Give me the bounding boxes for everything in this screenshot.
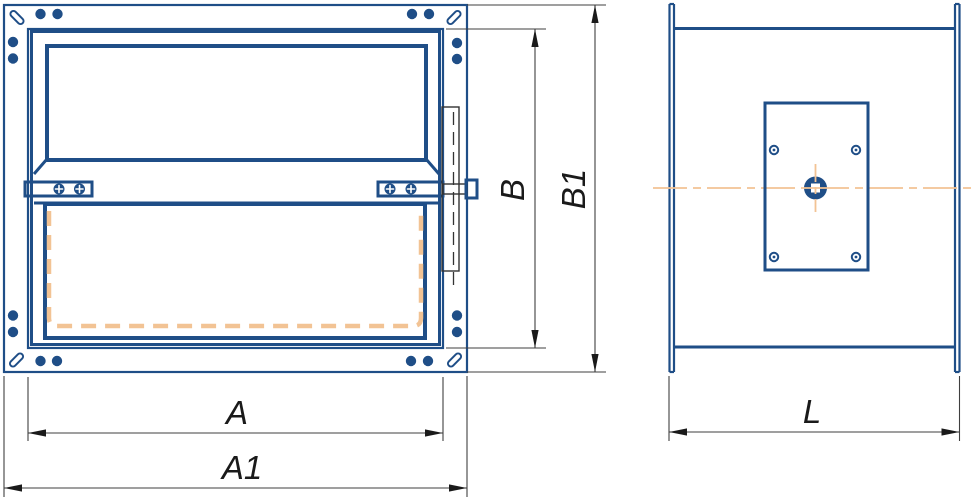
lower-panel <box>34 203 439 338</box>
mounting-screw-hole <box>852 253 860 261</box>
bolt-hole <box>452 54 462 64</box>
dimension-a: A <box>28 377 443 441</box>
bolt-hole <box>52 9 62 19</box>
mounting-screw-hole <box>770 253 778 261</box>
arrowhead <box>669 428 687 435</box>
bolt-hole <box>52 356 62 366</box>
blade-closed-phantom <box>49 211 421 326</box>
blade-panel <box>47 46 426 160</box>
screw-icon <box>385 184 396 195</box>
bolt-hole <box>452 310 462 320</box>
dimensions: B B1 A A1 <box>4 5 960 497</box>
arrowhead <box>591 354 598 372</box>
hidden-plate-outline <box>442 107 459 271</box>
corner-slot-icon-top-right <box>446 10 462 26</box>
drive-shaft-end <box>804 164 827 212</box>
damper-technical-drawing: B B1 A A1 <box>0 0 974 504</box>
dimension-l: L <box>669 376 960 441</box>
dimension-label-b: B <box>494 179 531 201</box>
dimension-label-l: L <box>803 393 821 430</box>
bolt-hole <box>424 9 434 19</box>
bolt-hole <box>8 53 18 63</box>
arrowhead <box>942 428 960 435</box>
arrowhead <box>425 429 443 436</box>
arrowhead <box>4 484 22 491</box>
flange-inner-outline <box>28 29 443 348</box>
bolt-hole <box>423 356 433 366</box>
mounting-screw-hole <box>770 146 778 154</box>
blade-corner-left <box>34 159 47 174</box>
actuator-plate-hidden-edge <box>442 107 459 289</box>
arrowhead <box>28 429 46 436</box>
dimension-label-b1: B1 <box>555 169 592 209</box>
lower-panel-outline <box>45 204 425 338</box>
corner-slot-icon-top-left <box>9 10 25 26</box>
blade-corner-right <box>426 159 439 174</box>
arrowhead <box>531 29 538 47</box>
bolt-hole <box>35 9 45 19</box>
arrowhead <box>449 484 467 491</box>
blade-open <box>34 46 439 174</box>
dimension-b: B <box>446 29 546 348</box>
bolt-hole <box>8 310 18 320</box>
dimension-label-a: A <box>224 394 248 431</box>
flange-outer-outline <box>4 5 467 372</box>
flange-frame <box>4 5 467 372</box>
screw-icon <box>74 184 85 195</box>
drawing-canvas: B B1 A A1 <box>0 0 974 504</box>
blade-axis <box>25 180 477 198</box>
front-view <box>4 5 477 372</box>
screw-icon <box>406 184 417 195</box>
bolt-hole <box>407 9 417 19</box>
side-view <box>653 4 971 372</box>
corner-slot-icon-bottom-left <box>9 352 25 368</box>
dimension-label-a1: A1 <box>220 449 262 486</box>
dimension-b1: B1 <box>467 5 606 372</box>
bolt-hole <box>452 38 462 48</box>
arrowhead <box>531 330 538 348</box>
arrowhead <box>591 5 598 23</box>
mounting-screw-hole <box>852 146 860 154</box>
bolt-hole <box>452 327 462 337</box>
bolt-hole <box>35 356 45 366</box>
bolt-hole <box>406 356 416 366</box>
bolt-hole <box>8 327 18 337</box>
axis-pass-through <box>443 184 467 194</box>
bolt-hole <box>8 37 18 47</box>
corner-slot-icon-bottom-right <box>447 352 463 368</box>
screw-icon <box>54 184 65 195</box>
